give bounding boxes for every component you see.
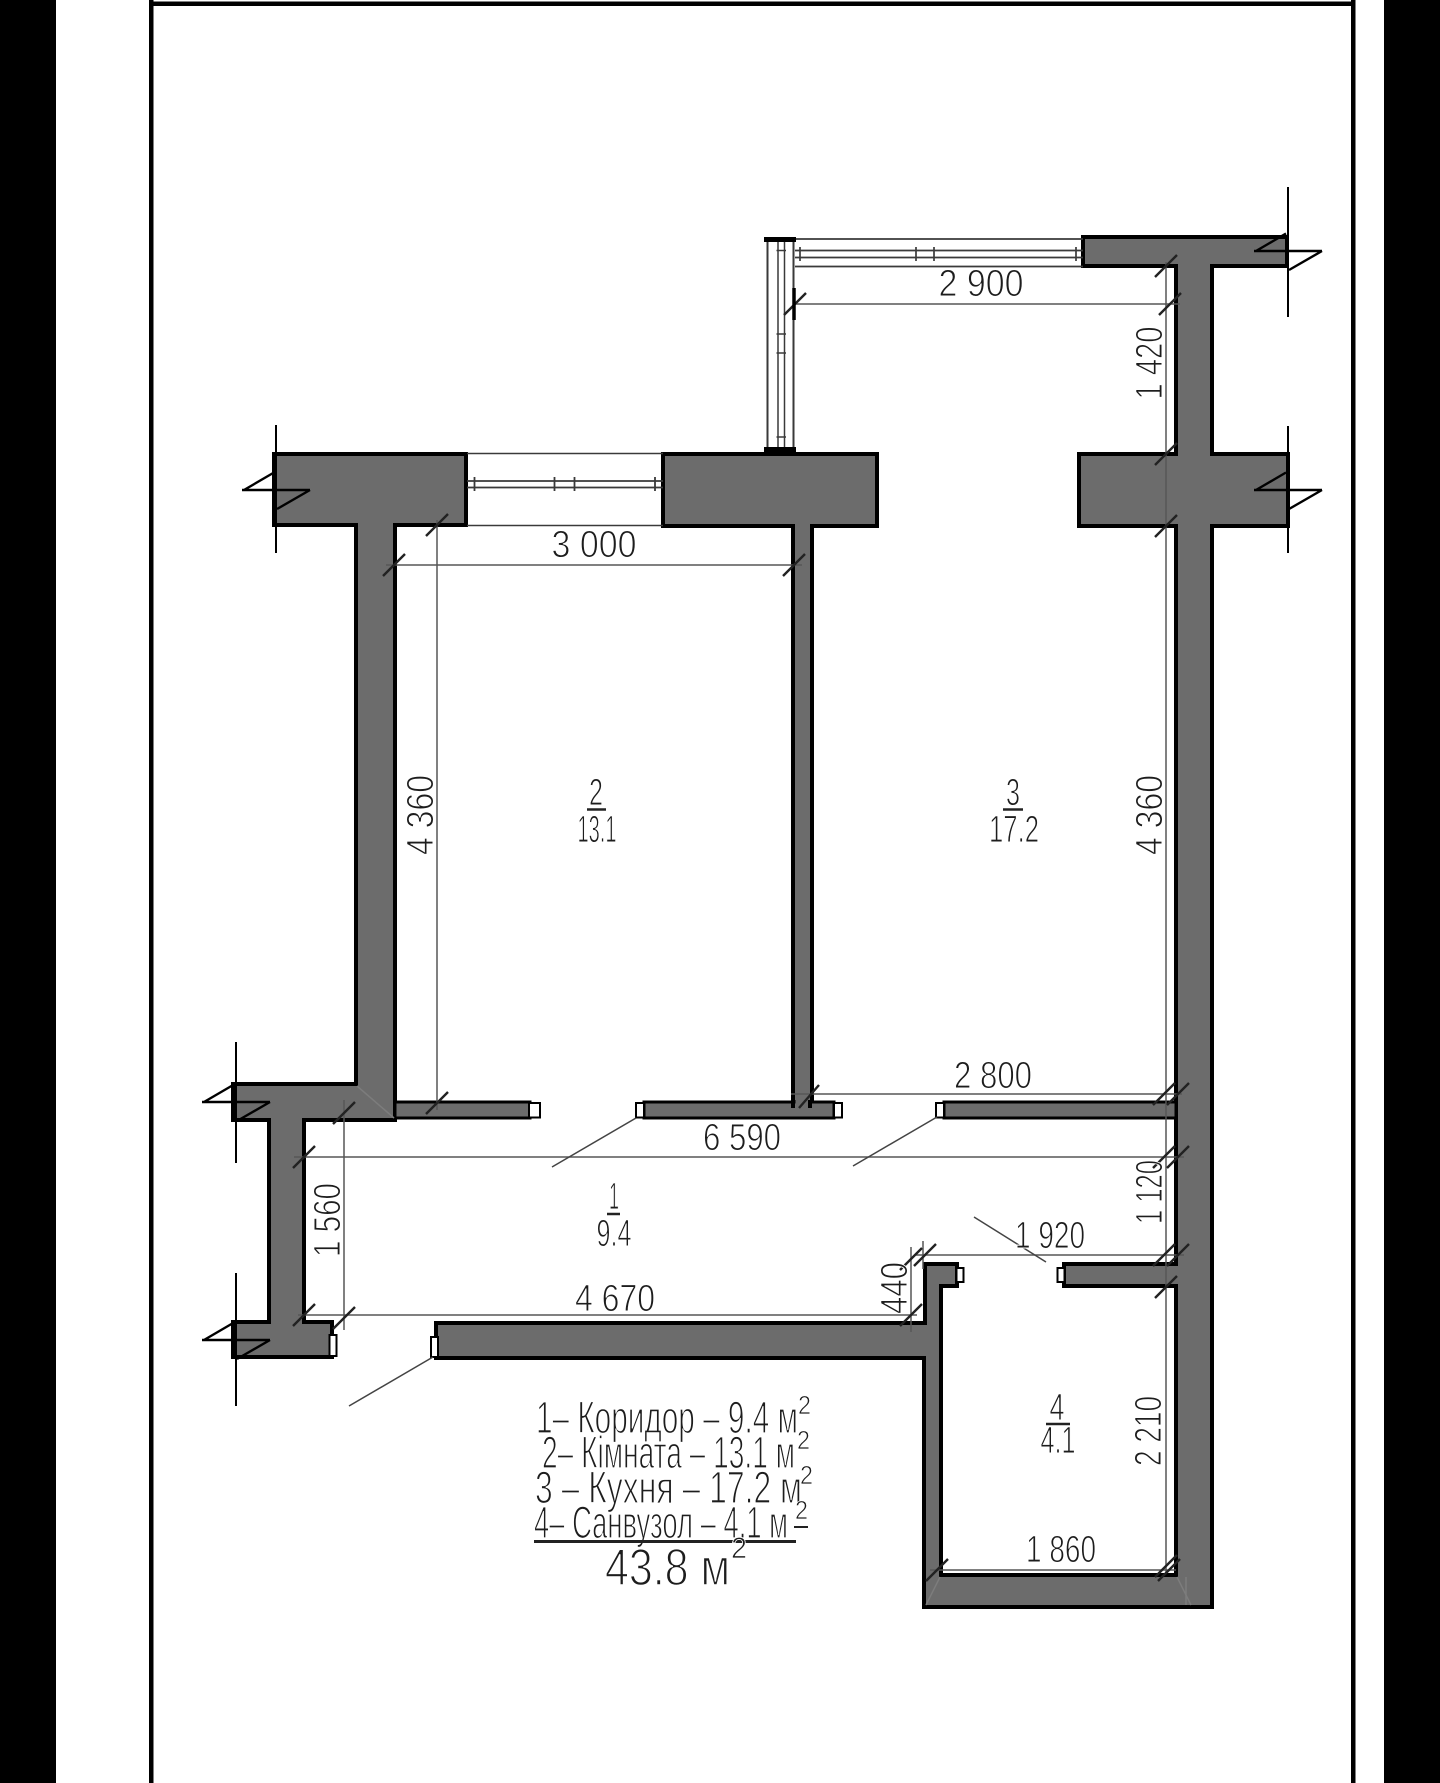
svg-text:4 670: 4 670 (575, 1278, 655, 1320)
svg-text:2: 2 (589, 772, 603, 814)
svg-text:2: 2 (798, 1390, 811, 1420)
svg-text:3 000: 3 000 (552, 524, 637, 566)
svg-text:13.1: 13.1 (578, 809, 617, 851)
svg-text:4.1: 4.1 (1041, 1420, 1076, 1462)
svg-text:9.4: 9.4 (597, 1213, 632, 1255)
svg-text:3: 3 (1006, 772, 1020, 814)
svg-text:4 360: 4 360 (1129, 775, 1171, 855)
svg-text:440: 440 (874, 1262, 916, 1314)
svg-text:2: 2 (731, 1532, 747, 1565)
svg-text:1 560: 1 560 (307, 1183, 349, 1257)
svg-text:1 860: 1 860 (1026, 1529, 1096, 1571)
svg-text:1 120: 1 120 (1129, 1160, 1171, 1224)
svg-text:2: 2 (795, 1495, 808, 1525)
svg-text:6 590: 6 590 (703, 1117, 781, 1159)
svg-text:2 900: 2 900 (939, 263, 1024, 305)
svg-text:2 800: 2 800 (954, 1055, 1032, 1097)
svg-text:2: 2 (800, 1460, 813, 1490)
svg-text:17.2: 17.2 (989, 809, 1039, 851)
svg-text:2: 2 (797, 1425, 810, 1455)
svg-text:1: 1 (609, 1176, 619, 1218)
svg-text:1 420: 1 420 (1129, 327, 1171, 400)
svg-text:1 920: 1 920 (1015, 1215, 1085, 1257)
svg-text:4 360: 4 360 (400, 775, 442, 855)
svg-text:2 210: 2 210 (1128, 1396, 1170, 1466)
svg-text:43.8 м: 43.8 м (605, 1539, 730, 1597)
